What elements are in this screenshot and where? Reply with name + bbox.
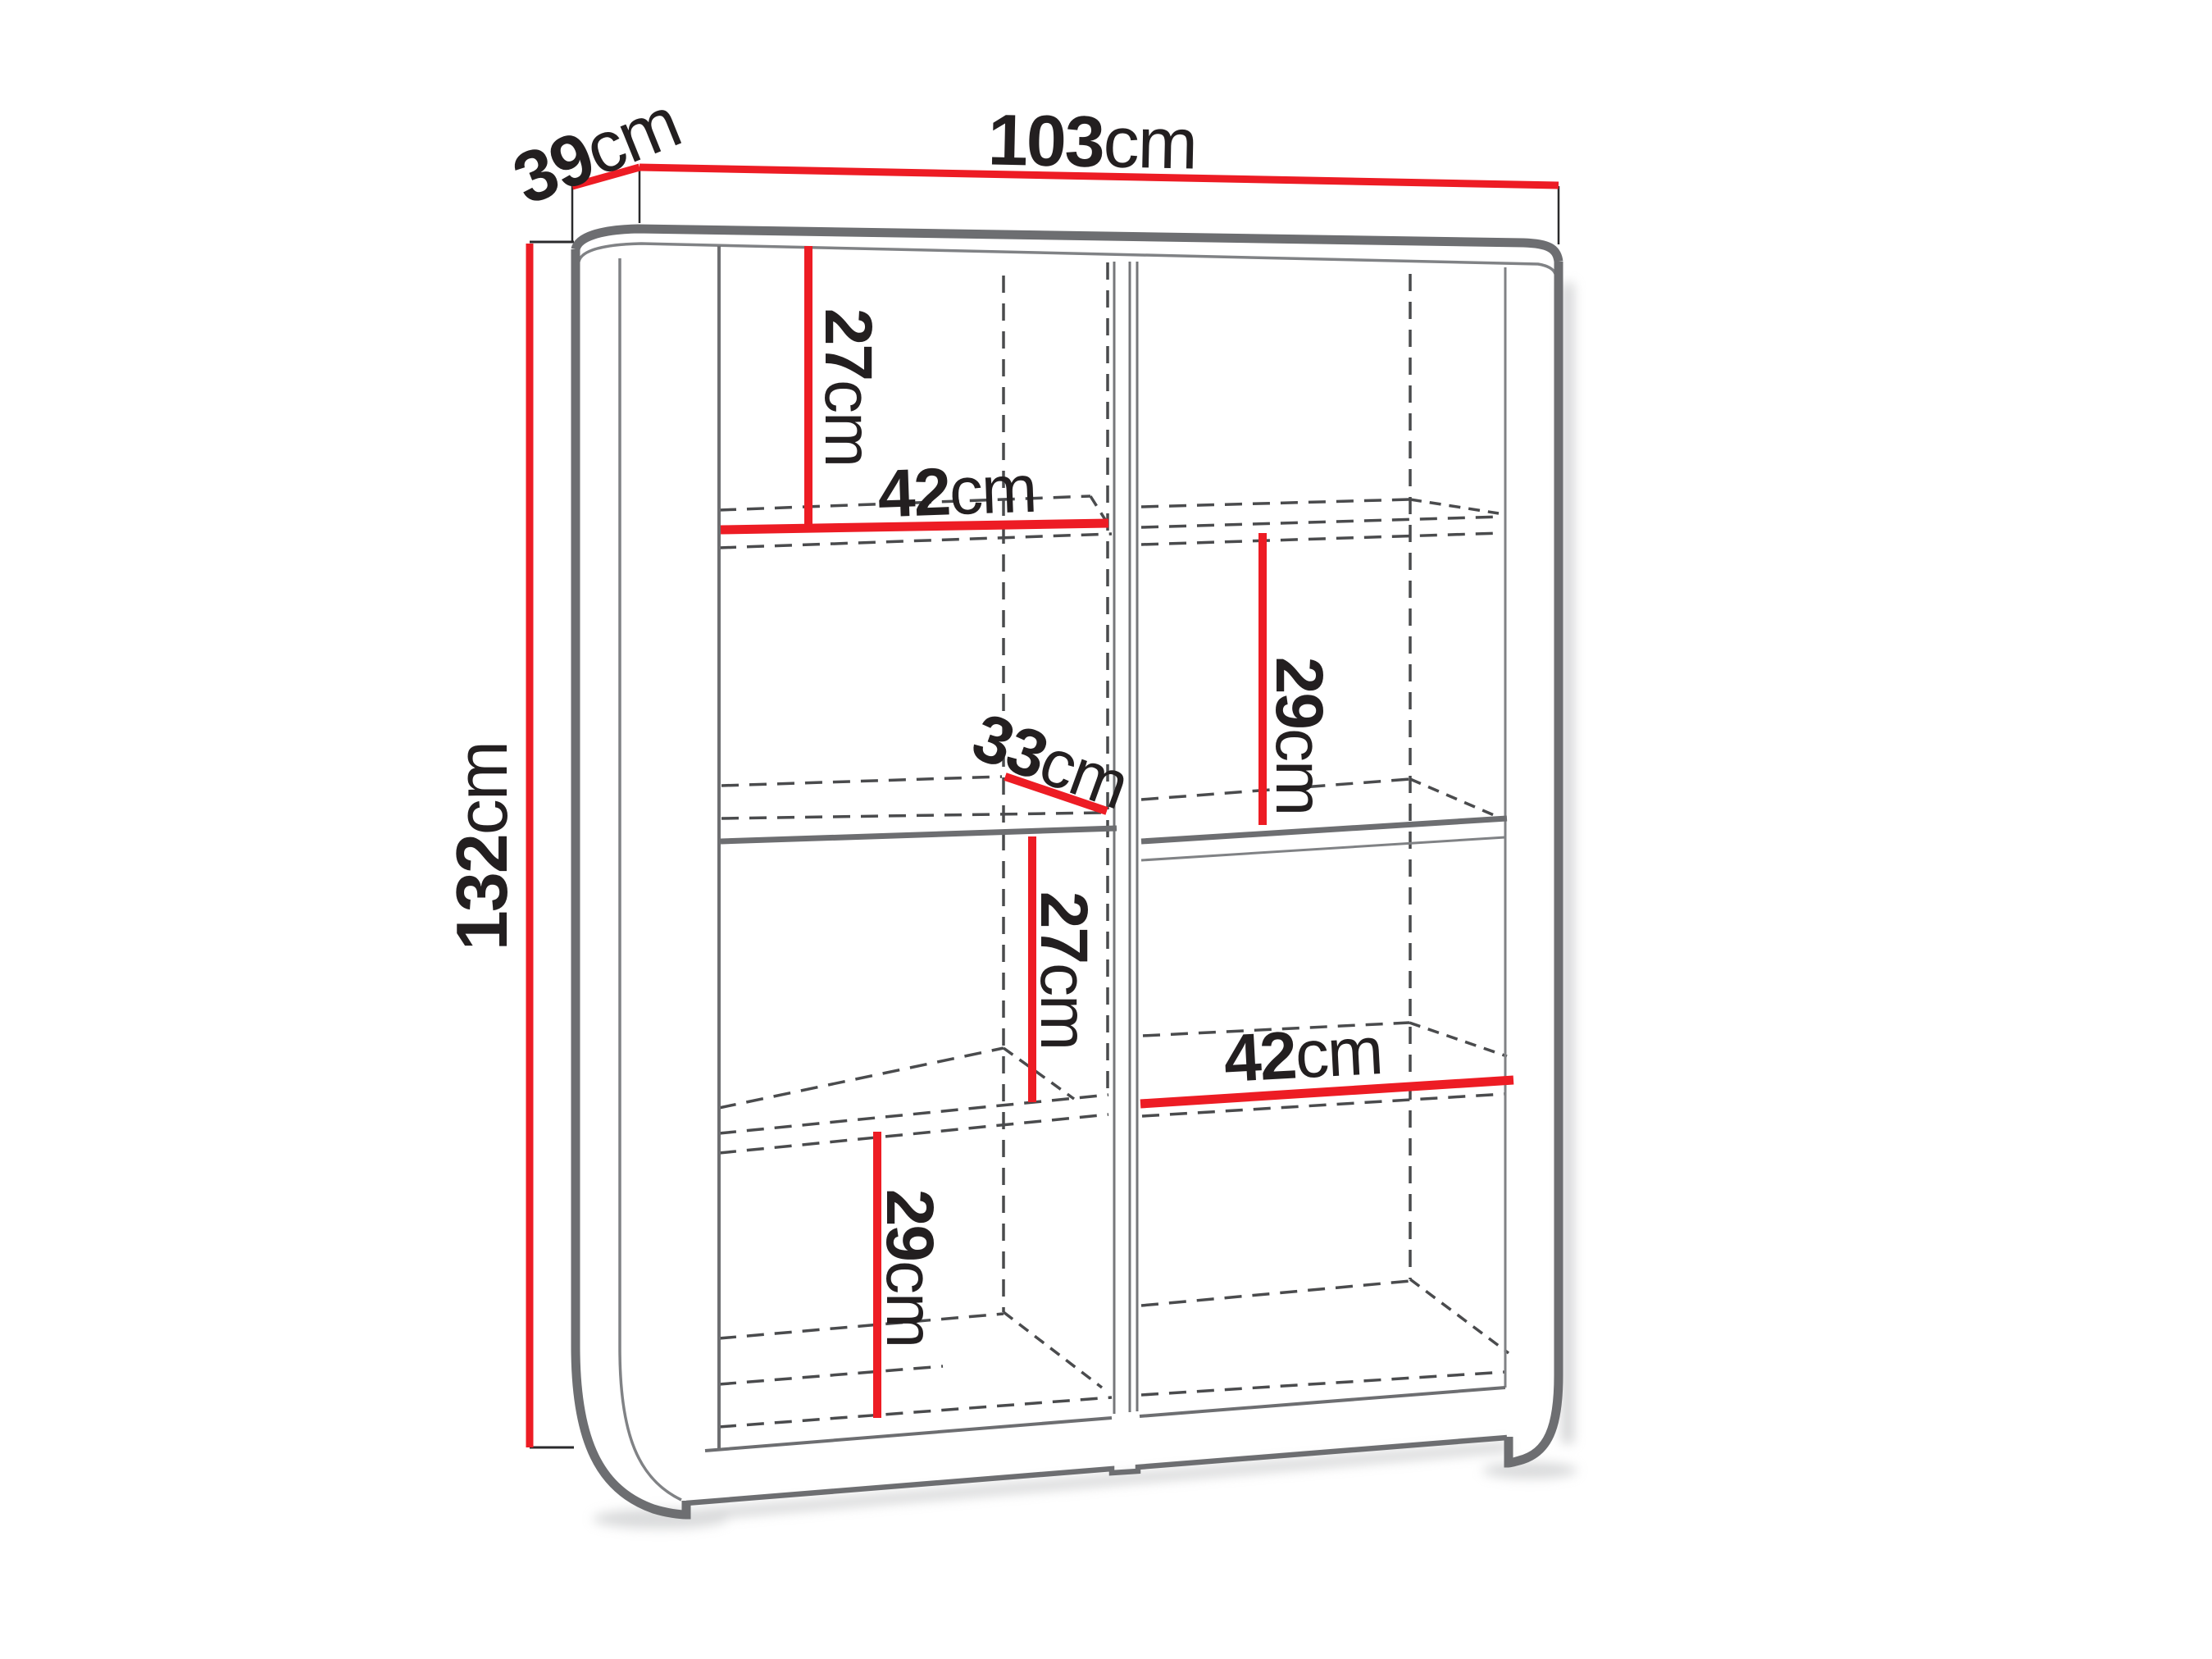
cabinet-outline	[530, 167, 1559, 1515]
hidden-edge	[1141, 499, 1410, 507]
dimension-lines	[530, 167, 1559, 1447]
hidden-edge	[721, 813, 1103, 818]
shadow-bottom	[695, 1447, 1509, 1515]
left-side-inner-edge	[620, 258, 681, 1500]
left-side-panel	[576, 249, 686, 1515]
hidden-edge	[1141, 533, 1502, 545]
hidden-edge	[719, 1095, 1108, 1133]
hidden-edge	[719, 1314, 1004, 1338]
left-shelf-width-label: 42cm	[876, 451, 1037, 531]
door-bottom-edge	[705, 1388, 1505, 1451]
top-rim-inner	[579, 244, 1555, 274]
shadow-right-foot	[1482, 1462, 1577, 1479]
hidden-edge	[1410, 1279, 1509, 1353]
right-shelf-width-label: 42cm	[1222, 1014, 1383, 1096]
hidden-edge	[1004, 1048, 1074, 1099]
width-label: 103cm	[987, 98, 1197, 184]
left-top-compartment-label: 27cm	[812, 308, 886, 467]
height-label: 132cm	[441, 742, 522, 950]
hidden-edge	[1409, 1023, 1507, 1056]
left-bottom-compartment-label: 29cm	[873, 1189, 948, 1347]
hidden-edge	[719, 1366, 943, 1384]
hidden-edge	[719, 1048, 1004, 1108]
depth-label: 39cm	[502, 80, 690, 219]
hidden-edge	[1141, 517, 1502, 527]
hidden-edge	[721, 777, 1002, 786]
hidden-edge	[1004, 1312, 1102, 1388]
shelf-front-edge	[1141, 818, 1507, 841]
shelf-front-edge	[721, 828, 1117, 841]
hidden-edge	[1410, 499, 1499, 513]
dimension-diagram: 39cm 103cm 132cm 27cm 42cm 33cm 29cm 27c…	[0, 0, 2212, 1659]
hidden-edge	[719, 534, 1112, 548]
right-side-panel	[1509, 262, 1559, 1463]
hidden-edge	[1141, 1281, 1410, 1306]
dimension-labels: 39cm 103cm 132cm 27cm 42cm 33cm 29cm 27c…	[441, 80, 1384, 1347]
shelf-depth-label: 33cm	[963, 699, 1137, 823]
left-middle-compartment-label: 27cm	[1027, 891, 1102, 1050]
plinth-bottom-edge	[686, 1438, 1507, 1503]
right-upper-compartment-label: 29cm	[1263, 657, 1337, 815]
cabinet-drawing: 39cm 103cm 132cm 27cm 42cm 33cm 29cm 27c…	[0, 0, 2212, 1659]
hidden-edge	[1410, 779, 1505, 820]
hidden-edge	[719, 1114, 1108, 1153]
